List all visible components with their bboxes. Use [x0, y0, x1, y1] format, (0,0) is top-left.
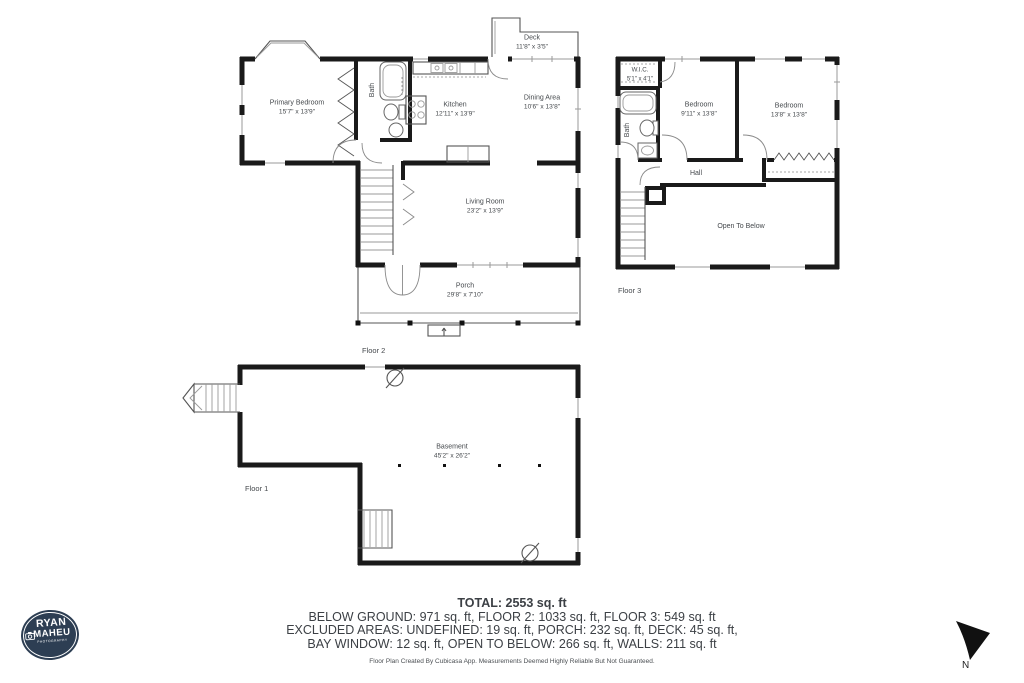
logo-name-line1: RYAN	[27, 616, 76, 630]
floor1-walls	[238, 365, 580, 565]
floor2-plan-drawing	[230, 10, 590, 350]
room-label-primary-bedroom: Primary Bedroom 15'7" x 13'9"	[270, 100, 324, 117]
closet-bifold-icon-floor3	[774, 153, 834, 160]
floor2-tag: Floor 2	[362, 346, 385, 355]
room-label-basement: Basement 45'2" x 26'2"	[434, 444, 470, 461]
room-label-dining-area: Dining Area 10'6" x 13'8"	[524, 95, 560, 112]
logo-text: RYAN MAHEU PHOTOGRAPHY	[27, 616, 77, 645]
porch-outline	[356, 267, 581, 336]
area-line-floors: BELOW GROUND: 971 sq. ft, FLOOR 2: 1033 …	[0, 611, 1024, 624]
chimney-block	[647, 188, 664, 203]
floor1-tag: Floor 1	[245, 484, 268, 493]
area-line-excluded-2: BAY WINDOW: 12 sq. ft, OPEN TO BELOW: 26…	[0, 638, 1024, 651]
kitchen-counter	[402, 62, 488, 96]
room-label-hall: Hall	[690, 170, 702, 178]
logo-name-line2: MAHEU	[28, 627, 77, 640]
bathtub-icon-floor3	[620, 92, 656, 114]
room-label-bedroom1: Bedroom 9'11" x 13'8"	[681, 102, 717, 119]
room-label-bath-floor3: Bath	[624, 123, 632, 137]
room-label-bath-floor2: Bath	[369, 83, 377, 97]
room-label-living-room: Living Room 23'2" x 13'9"	[466, 199, 505, 216]
bulkhead-stairs-icon	[183, 384, 240, 412]
floor1-plan-drawing	[180, 360, 590, 575]
room-label-open-to-below: Open To Below	[717, 223, 764, 231]
floor1-windows	[365, 364, 581, 552]
floor1-stairs-icon	[358, 510, 392, 548]
floor3-tag: Floor 3	[618, 286, 641, 295]
camera-icon	[25, 631, 36, 641]
floor2-walls	[240, 57, 580, 267]
floor3-stairs-icon	[620, 187, 645, 260]
total-area-text: TOTAL: 2553 sq. ft	[0, 596, 1024, 610]
room-label-deck: Deck 11'8" x 3'5"	[516, 35, 548, 52]
support-posts	[398, 464, 541, 467]
island-bench	[447, 146, 489, 162]
utility-symbol-top	[386, 368, 404, 388]
room-label-kitchen: Kitchen 12'11" x 13'9"	[435, 102, 474, 119]
north-label: N	[962, 660, 969, 671]
bay-window	[255, 41, 320, 59]
porch-steps	[428, 325, 460, 336]
stair-closet-doors	[403, 184, 414, 225]
toilet-icon	[384, 104, 405, 120]
room-label-wic: W.I.C. 5'1" x 4'1"	[627, 67, 653, 84]
room-label-porch: Porch 29'8" x 7'10"	[447, 283, 483, 300]
floor-plan-page: Primary Bedroom 15'7" x 13'9" Bath Kitch…	[0, 0, 1024, 683]
room-label-bedroom2: Bedroom 13'8" x 13'8"	[771, 103, 807, 120]
floor2-stairs-icon	[361, 165, 393, 255]
compass: N	[948, 616, 998, 676]
closet-bifold-icon	[338, 68, 354, 156]
disclaimer-text: Floor Plan Created By Cubicasa App. Meas…	[0, 658, 1024, 665]
sink-icon	[389, 123, 403, 137]
toilet-icon-floor3	[640, 120, 658, 136]
floor3-plan-drawing	[610, 50, 845, 300]
area-line-excluded-1: EXCLUDED AREAS: UNDEFINED: 19 sq. ft, PO…	[0, 624, 1024, 637]
north-arrow-icon	[948, 616, 998, 662]
utility-symbol-bottom	[521, 543, 539, 563]
area-breakdown-text: BELOW GROUND: 971 sq. ft, FLOOR 2: 1033 …	[0, 611, 1024, 651]
floor3-walls	[616, 57, 839, 269]
sink-icon-floor3	[638, 143, 657, 158]
logo-subtitle: PHOTOGRAPHY	[28, 637, 76, 645]
